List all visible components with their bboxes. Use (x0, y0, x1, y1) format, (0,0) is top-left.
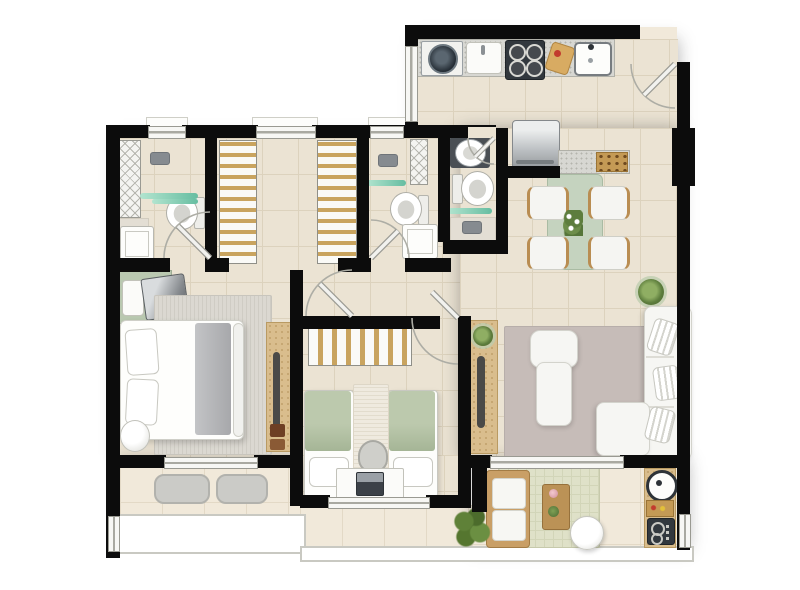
bath3-glass-shelf (448, 208, 492, 214)
bath1-shelf-unit (119, 140, 141, 218)
gourmet-plant-icon (452, 506, 492, 550)
gourmet-cooktop-icon (647, 518, 675, 545)
wall-balcony-divider (472, 466, 487, 512)
wall-kitchen-top (405, 25, 640, 39)
twin-bed-left-blanket (305, 391, 351, 451)
barbecue-grill-icon (646, 470, 678, 502)
closet-wardrobe-left (219, 140, 257, 264)
cooktop-knobs (666, 522, 669, 540)
door-opening-bath3 (468, 127, 496, 138)
sliding-door-living-balcony (490, 456, 624, 469)
wall-master-bottom-left (118, 455, 166, 468)
wall-top-3 (312, 125, 357, 138)
wall-bath2-bottom-right (405, 258, 451, 272)
sideboard-plant-icon (473, 326, 493, 346)
floor-plan (0, 0, 800, 590)
master-bed-footrail (233, 323, 244, 437)
window-master-bedroom (164, 457, 258, 469)
door-opening-entrance (640, 27, 677, 39)
serving-tray-icon (596, 152, 628, 172)
wall-bath3-right (496, 128, 508, 244)
balcony-railing-bottom (300, 546, 694, 562)
dining-chair-3 (527, 236, 569, 270)
wall-closet-stub-right (338, 258, 369, 272)
wall-bath3-bottom (443, 240, 508, 254)
gourmet-bottle-icon (549, 489, 558, 498)
balcony-mat-2 (216, 474, 268, 504)
sofa-seat-line-1 (646, 356, 674, 358)
gourmet-pouf (570, 516, 604, 550)
cooktop-burner-2 (651, 533, 663, 545)
master-cabinet-groove (273, 352, 280, 428)
master-pillow-1 (124, 328, 159, 376)
floor-balcony-middle (300, 505, 472, 549)
bath3-toilet (461, 171, 494, 206)
slipper-mat-2 (270, 439, 285, 450)
slipper-mat-1 (270, 424, 285, 437)
bath2-duct-shaft (410, 139, 428, 185)
dining-chair-4 (588, 236, 630, 270)
window-bedroom2 (328, 497, 430, 509)
chaise-seat (536, 362, 572, 426)
stove-burner-3 (509, 60, 526, 77)
balcony-mat-1 (154, 474, 210, 504)
wall-closet-stub-left (205, 258, 229, 272)
tomato-icon (554, 50, 561, 57)
glass-panel-left-wall (108, 516, 120, 552)
gourmet-mini-plant-icon (548, 506, 559, 517)
gourmet-food-tray (646, 500, 674, 517)
gourmet-sofa (486, 470, 530, 548)
window-bath2 (370, 126, 404, 139)
gourmet-sofa-cushion-2 (492, 510, 526, 541)
sofa-chaise-extension (596, 402, 650, 456)
wall-left (106, 125, 120, 558)
wall-fridge-nook (498, 166, 560, 178)
bath1-shower-head-icon (150, 152, 170, 165)
laundry-faucet-icon (481, 45, 485, 55)
refrigerator-handle (516, 160, 554, 164)
stove-burner-2 (526, 44, 543, 61)
wall-bath2-bath3 (438, 138, 450, 242)
washing-machine-drum (428, 44, 458, 74)
wall-closet-bath2 (357, 125, 369, 272)
dining-chair-2 (588, 186, 630, 220)
kitchen-drain-icon (588, 58, 593, 63)
master-pouf (120, 420, 150, 452)
bath2-glass-shelf (366, 180, 406, 186)
bath1-vanity-sink (120, 226, 154, 262)
closet-wardrobe-right (317, 140, 357, 264)
twin-bed-right-blanket (389, 391, 435, 451)
refrigerator-icon (512, 120, 560, 172)
dining-plant-icon (638, 279, 664, 305)
wall-right-column (672, 128, 695, 186)
wall-bath1-right (205, 138, 217, 262)
window-closet (256, 126, 316, 139)
bath2-shower-head-icon (378, 154, 398, 167)
flower-centerpiece-icon (563, 210, 583, 236)
wall-right (677, 62, 690, 462)
wall-bedroom2-bottom-left (300, 495, 330, 508)
bath3-shower-head-icon (462, 221, 482, 234)
gourmet-sofa-cushion-1 (492, 478, 526, 509)
laptop-icon (356, 472, 384, 496)
grill-knob-icon (656, 480, 662, 486)
master-pillow-2 (125, 378, 159, 426)
wall-bedroom2-bottom-right (426, 495, 458, 508)
bath1-glass-shelf-2 (152, 199, 198, 204)
wall-master-top (106, 258, 170, 272)
wall-bedroom2-top (303, 316, 440, 329)
bedroom2-wardrobe (308, 328, 412, 366)
wall-master-bedroom2 (290, 270, 303, 506)
balcony-railing-left (118, 514, 306, 554)
wall-bedroom2-right (458, 316, 471, 508)
bath2-toilet (390, 192, 422, 226)
bath2-vanity-sink (402, 224, 438, 259)
master-bed-blanket (195, 323, 231, 435)
kitchen-faucet-icon (588, 44, 594, 50)
wall-master-bottom-right (254, 455, 302, 468)
stove-burner-4 (526, 60, 543, 77)
stove-burner-1 (509, 44, 526, 61)
bath3-basin (455, 139, 486, 167)
sideboard-groove (477, 356, 485, 428)
wall-top-2 (182, 125, 258, 138)
window-kitchen-left (405, 46, 418, 122)
window-bath1 (148, 126, 186, 139)
window-gourmet-right (679, 514, 691, 548)
